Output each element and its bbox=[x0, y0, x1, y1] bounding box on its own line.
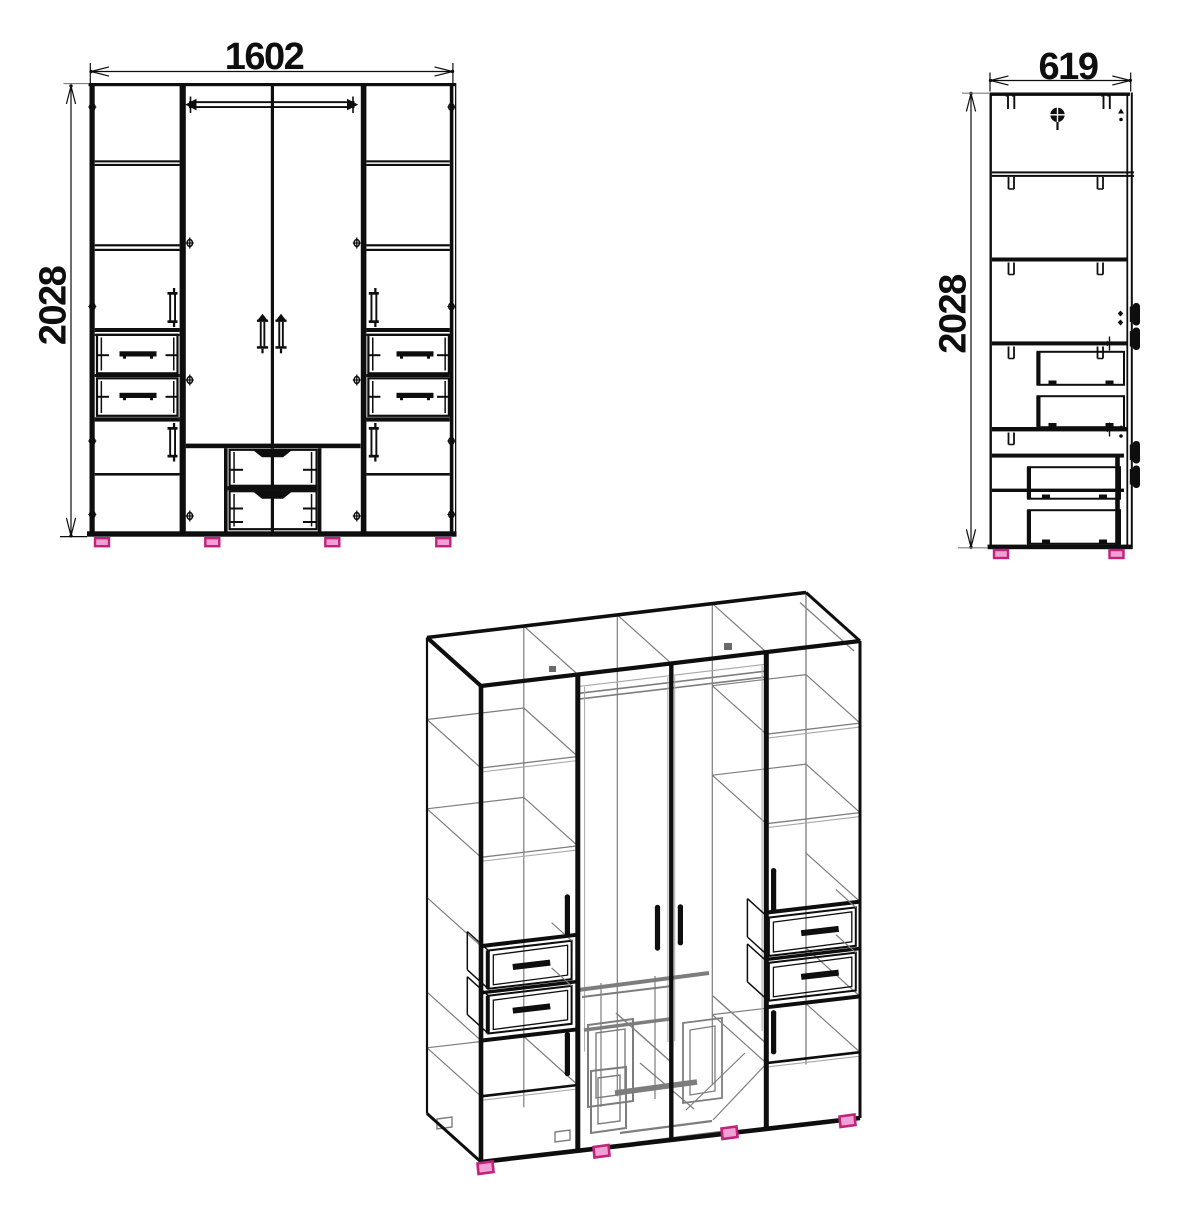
svg-text:1602: 1602 bbox=[225, 36, 304, 78]
svg-text:619: 619 bbox=[1039, 46, 1098, 88]
svg-text:2028: 2028 bbox=[33, 266, 75, 345]
svg-text:2028: 2028 bbox=[933, 275, 975, 354]
